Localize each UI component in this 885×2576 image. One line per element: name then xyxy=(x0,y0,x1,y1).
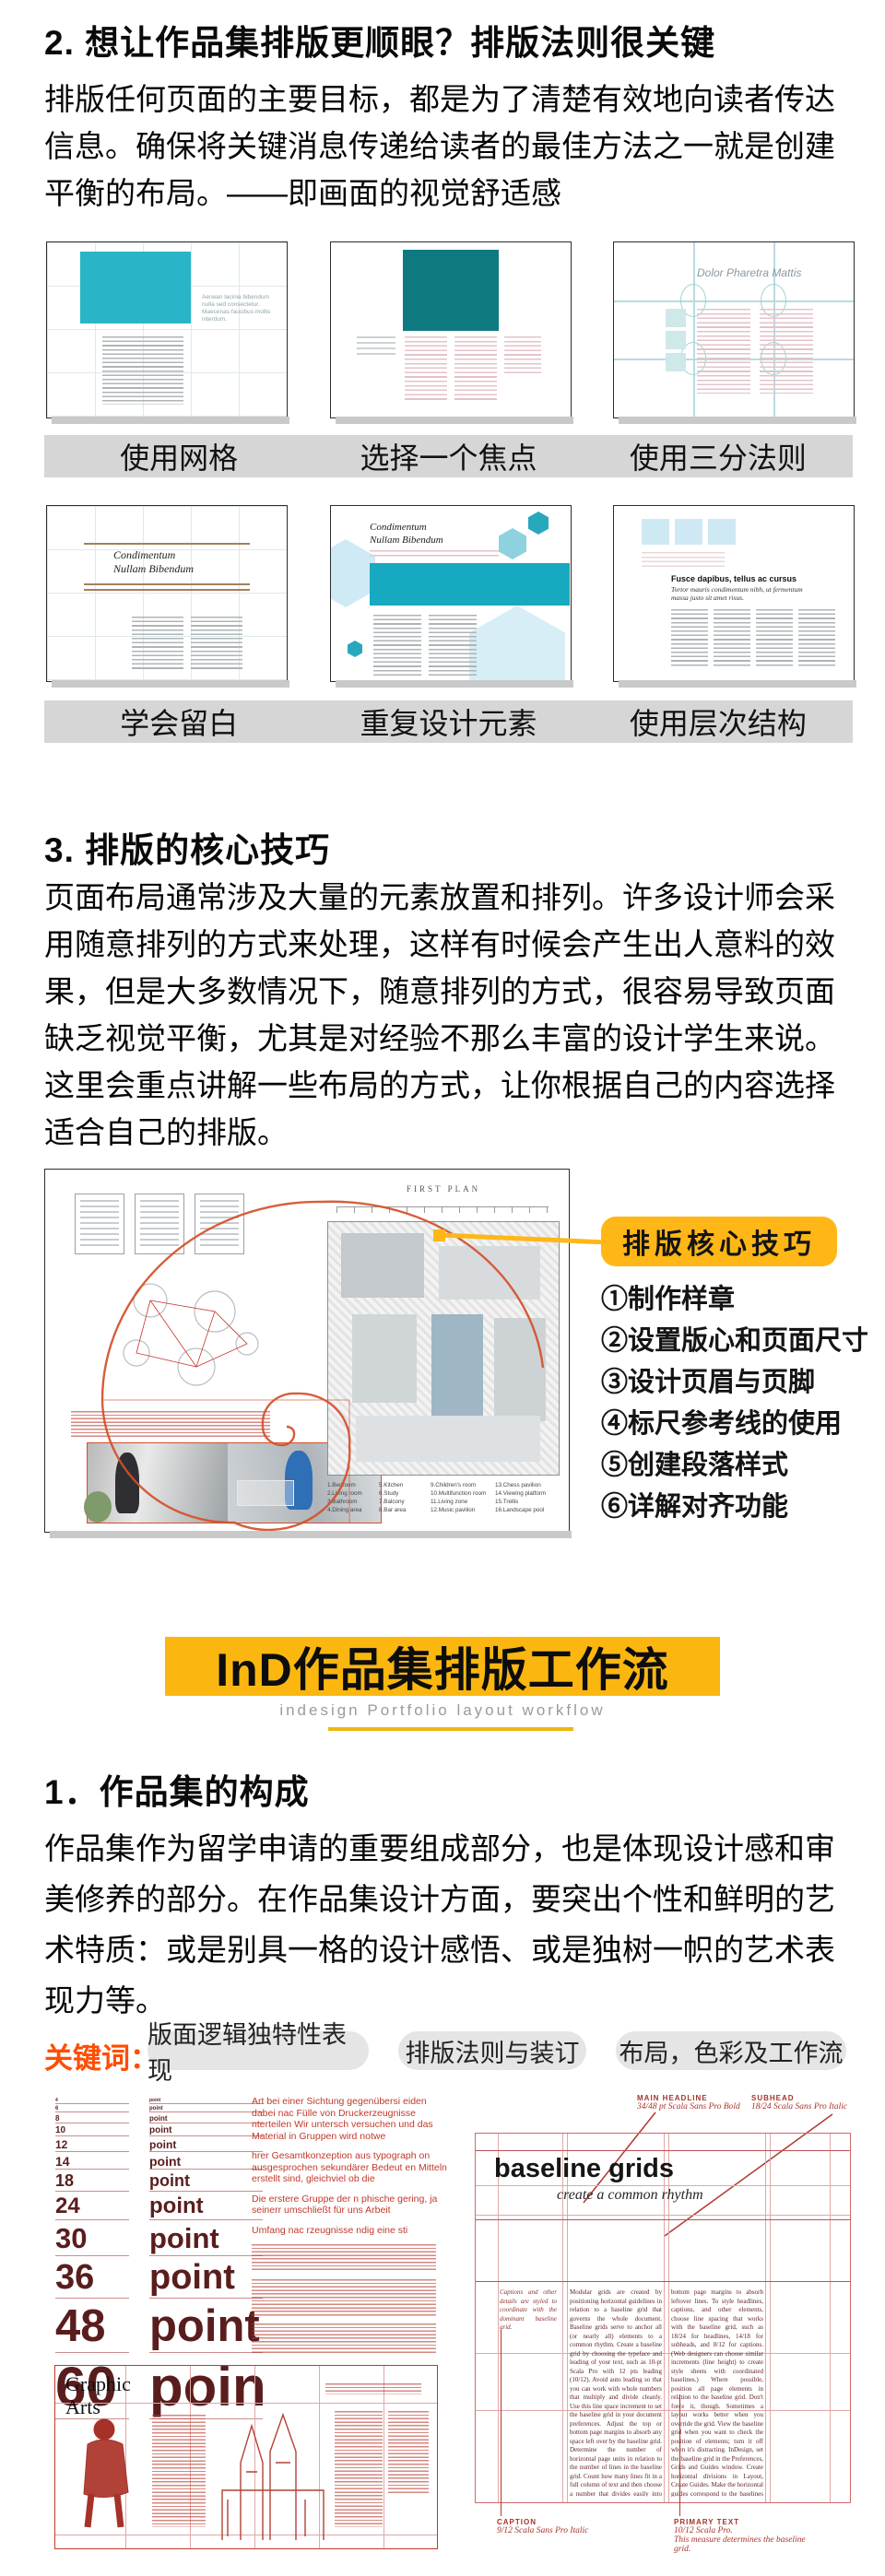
thumb6-subhead: Tortor mauris condimentum nibh, ut ferme… xyxy=(671,585,819,602)
typography-reference-image[interactable]: 4point 6point 8point 10point 12point 14p… xyxy=(32,2090,853,2564)
caption-note: CAPTION 9/12 Scala Sans Pro Italic xyxy=(497,2518,588,2535)
graphic-arts-title: Graphic Arts xyxy=(65,2372,148,2418)
legend-item: 3.Bathroom xyxy=(327,1498,379,1506)
layout-example-whitespace[interactable]: Condimentum Nullam Bibendum xyxy=(46,505,288,682)
gallery-caption: 选择一个焦点 xyxy=(313,435,583,477)
person-silhouette xyxy=(115,1453,139,1513)
caption-band-row2: 学会留白 重复设计元素 使用层次结构 xyxy=(44,700,853,743)
caption-column: Captions and other details are styled to… xyxy=(500,2288,557,2399)
keyword-tag[interactable]: 布局，色彩及工作流 xyxy=(616,2031,846,2070)
layout-example-repetition[interactable]: Condimentum Nullam Bibendum xyxy=(330,505,572,682)
legend-col: 9.Children's room 10.Multifunction room … xyxy=(431,1481,495,1514)
point-word: point xyxy=(149,2222,263,2256)
primary-spec: 10/12 Scala Pro. xyxy=(674,2526,821,2535)
red-column-filler xyxy=(335,2411,383,2527)
thumb4-title-line2: Nullam Bibendum xyxy=(113,562,252,576)
banner-title: InD作品集排版工作流 xyxy=(165,1637,720,1696)
caption-label: CAPTION xyxy=(497,2518,588,2526)
text-filler-block xyxy=(132,617,183,670)
callout-connector-line xyxy=(433,1220,608,1257)
baseline-grids-panel: MAIN HEADLINE 34/48 pt Scala Sans Pro Bo… xyxy=(473,2090,853,2564)
blue-square xyxy=(708,519,736,545)
margin-rule xyxy=(476,2150,850,2151)
teal-square xyxy=(666,353,686,371)
page-shadow xyxy=(619,417,856,424)
point-word: point xyxy=(149,2171,263,2192)
page-shadow xyxy=(336,680,573,688)
layout-example-rule-of-thirds[interactable]: Dolor Pharetra Mattis xyxy=(613,241,855,418)
point-word: point xyxy=(149,2138,263,2152)
thumb5-title: Condimentum Nullam Bibendum xyxy=(370,521,508,547)
text-filler-block xyxy=(373,615,421,676)
thirds-guide xyxy=(614,300,854,302)
teal-block xyxy=(80,252,191,323)
thumb4-title: Condimentum Nullam Bibendum xyxy=(113,548,252,576)
teal-square xyxy=(666,331,686,349)
tip-item: ②设置版心和页面尺寸 xyxy=(601,1321,868,1362)
primary-text-note: PRIMARY TEXT 10/12 Scala Pro. This measu… xyxy=(674,2518,821,2554)
gallery-caption: 重复设计元素 xyxy=(313,700,583,743)
teal-banner xyxy=(370,563,570,606)
text-filler-block xyxy=(642,552,725,567)
text-column-mid: Modular grids are created by positioning… xyxy=(570,2288,662,2497)
graphic-arts-line1: Graphic xyxy=(65,2372,148,2395)
page-shadow xyxy=(50,1531,572,1538)
brown-rule xyxy=(84,543,250,545)
blue-square xyxy=(642,519,669,545)
tip-item: ①制作样章 xyxy=(601,1279,868,1321)
gallery-caption: 使用网格 xyxy=(44,435,313,477)
thumb1-caption-text: Aenean lacinia bibendum nulla sed consec… xyxy=(202,294,276,323)
german-paragraph: Umfang nac rzeugnisse ndig eine sti xyxy=(252,2225,447,2237)
text-filler-block xyxy=(102,336,183,405)
text-filler-block xyxy=(798,609,835,666)
margin-rule xyxy=(476,2281,850,2282)
caption-spec: 9/12 Scala Sans Pro Italic xyxy=(497,2526,588,2535)
plant xyxy=(84,1491,112,1523)
legend-item: 4.Dining area xyxy=(327,1506,379,1514)
brown-rule xyxy=(84,589,250,591)
baseline-grids-title: baseline grids xyxy=(494,2154,674,2184)
point-size: 18 xyxy=(55,2171,129,2192)
article-page: 2. 想让作品集排版更顺眼？排版法则很关键 排版任何页面的主要目标，都是为了清楚… xyxy=(0,0,885,2576)
primary-note: This measure determines the baseline gri… xyxy=(674,2535,821,2554)
baseline-page: baseline grids create a common rhythm Ca… xyxy=(475,2133,851,2503)
tip-item: ⑤创建段落样式 xyxy=(601,1445,868,1487)
german-paragraph: Art bei einer Sichtung gegenübersi eiden… xyxy=(252,2096,447,2142)
legend-col: 1.Bedroom 2.Living room 3.Bathroom 4.Din… xyxy=(327,1481,379,1514)
legend-item: 10.Multifunction room xyxy=(431,1489,495,1498)
tip-item: ④标尺参考线的使用 xyxy=(601,1404,868,1445)
red-column-filler xyxy=(388,2411,429,2494)
gallery-caption: 使用三分法则 xyxy=(584,435,853,477)
plan-legend: 1.Bedroom 2.Living room 3.Bathroom 4.Din… xyxy=(327,1481,560,1514)
point-size: 4 xyxy=(55,2098,129,2104)
bench xyxy=(237,1480,294,1506)
graphic-arts-panel: Graphic Arts xyxy=(49,2359,443,2555)
text-filler-block xyxy=(191,617,242,670)
page-shadow xyxy=(52,417,289,424)
keyword-tag[interactable]: 版面逻辑独特性表现 xyxy=(147,2031,369,2070)
page-shadow xyxy=(619,680,856,688)
caption-pointer-line xyxy=(501,2330,501,2516)
gallery-caption: 学会留白 xyxy=(44,700,313,743)
banner-underline xyxy=(328,1727,573,1731)
keyword-tag[interactable]: 排版法则与装订 xyxy=(398,2031,586,2070)
section1-paragraph: 作品集作为留学申请的重要组成部分，也是体现设计感和审美修养的部分。在作品集设计方… xyxy=(44,1823,843,2026)
point-size: 30 xyxy=(55,2222,129,2256)
activity-analysis-diagram xyxy=(86,1265,279,1404)
red-caption-text xyxy=(71,1411,270,1437)
gallery-caption: 使用层次结构 xyxy=(584,700,853,743)
margin-guide xyxy=(830,2134,831,2502)
red-quote-filler xyxy=(325,2383,421,2394)
banner-subtitle: indesign Portfolio layout workflow xyxy=(0,1701,885,1720)
point-size: 14 xyxy=(55,2154,129,2170)
plan-block xyxy=(356,1416,540,1462)
german-text-column: Art bei einer Sichtung gegenübersi eiden… xyxy=(252,2096,447,2362)
hexagon-shape xyxy=(469,606,565,682)
point-size: 10 xyxy=(55,2125,129,2136)
legend-item: 15.Trellis xyxy=(495,1498,560,1506)
legend-item: 16.Landscape pool xyxy=(495,1506,560,1514)
column-guide xyxy=(765,2134,766,2502)
text-filler-block xyxy=(671,609,708,666)
legend-col: 5.Kitchen 6.Study 7.Balcony 8.Bar area xyxy=(379,1481,431,1514)
point-size: 12 xyxy=(55,2138,129,2152)
text-filler-block xyxy=(454,336,497,403)
legend-col: 13.Chess pavilion 14.Viewing platform 15… xyxy=(495,1481,560,1514)
point-word: point xyxy=(149,2258,263,2299)
layout-example-grid[interactable]: Aenean lacinia bibendum nulla sed consec… xyxy=(46,241,288,418)
legend-item: 6.Study xyxy=(379,1489,431,1498)
section3-paragraph: 页面布局通常涉及大量的元素放置和排列。许多设计师会采用随意排列的方式来处理，这样… xyxy=(44,874,843,1156)
dimension-ruler xyxy=(336,1206,549,1213)
text-filler-block xyxy=(357,336,395,357)
point-word: point xyxy=(149,2106,263,2112)
legend-item: 8.Bar area xyxy=(379,1506,431,1514)
hexagon-shape xyxy=(528,512,549,535)
primary-pointer-line xyxy=(679,2394,680,2516)
legend-item: 1.Bedroom xyxy=(327,1481,379,1489)
text-filler-block xyxy=(714,609,750,666)
hexagon-shape xyxy=(348,641,362,657)
point-word: point xyxy=(149,2194,263,2220)
thumb3-title: Dolor Pharetra Mattis xyxy=(697,266,817,279)
section1-heading: 1．作品集的构成 xyxy=(44,1764,310,1814)
plan-block xyxy=(352,1314,417,1403)
callout-pill: 排版核心技巧 xyxy=(601,1217,837,1266)
keywords-label: 关键词： xyxy=(44,2035,159,2076)
text-filler-block xyxy=(405,336,447,403)
plan-label: FIRST PLAN xyxy=(407,1184,480,1194)
plan-courtyard xyxy=(431,1314,483,1425)
blue-square xyxy=(675,519,702,545)
section2-heading: 2. 想让作品集排版更顺眼？排版法则很关键 xyxy=(44,15,715,65)
point-size: 48 xyxy=(55,2300,129,2353)
text-filler-block xyxy=(760,309,813,394)
point-size: 24 xyxy=(55,2194,129,2220)
text-filler-block xyxy=(504,336,541,373)
hexagon-shape xyxy=(330,539,375,607)
thumb5-title-line1: Condimentum xyxy=(370,521,508,534)
legend-item: 9.Children's room xyxy=(431,1481,495,1489)
thumb6-heading: Fusce dapibus, tellus ac cursus xyxy=(671,574,828,583)
page-shadow xyxy=(336,417,573,424)
woodcut-figure xyxy=(69,2413,141,2533)
caption-band-row1: 使用网格 选择一个焦点 使用三分法则 xyxy=(44,435,853,477)
legend-item: 12.Music pavilion xyxy=(431,1506,495,1514)
legend-item: 5.Kitchen xyxy=(379,1481,431,1489)
text-filler-block xyxy=(429,615,477,676)
tips-list: ①制作样章 ②设置版心和页面尺寸 ③设计页眉与页脚 ④标尺参考线的使用 ⑤创建段… xyxy=(601,1279,868,1528)
point-size: 8 xyxy=(55,2114,129,2123)
margin-rule xyxy=(476,2219,850,2220)
red-text-filler xyxy=(252,2244,436,2272)
plan-block xyxy=(341,1233,424,1298)
page-shadow xyxy=(52,680,289,688)
layout-example-hierarchy[interactable]: Fusce dapibus, tellus ac cursus Tortor m… xyxy=(613,505,855,682)
german-paragraph: Die erstere Gruppe der n phische gering,… xyxy=(252,2194,447,2217)
point-size: 36 xyxy=(55,2258,129,2299)
thumb5-title-line2: Nullam Bibendum xyxy=(370,534,508,547)
column-guide xyxy=(770,2134,771,2502)
mini-plan xyxy=(195,1194,244,1254)
point-word: point xyxy=(149,2098,263,2104)
brown-rule xyxy=(84,583,250,585)
german-paragraph: hrer Gesamtkonzeption aus typograph on a… xyxy=(252,2150,447,2185)
legend-item: 13.Chess pavilion xyxy=(495,1481,560,1489)
text-column-right: bottom page margins to absorb leftover l… xyxy=(671,2288,763,2497)
mini-plan xyxy=(135,1194,184,1254)
section3-heading: 3. 排版的核心技巧 xyxy=(44,822,330,872)
tip-item: ⑥详解对齐功能 xyxy=(601,1487,868,1528)
baseline-rule xyxy=(476,2410,850,2411)
layout-example-focal-point[interactable] xyxy=(330,241,572,418)
tip-item: ③设计页眉与页脚 xyxy=(601,1362,868,1404)
dark-teal-block xyxy=(403,250,499,331)
baseline-rule xyxy=(476,2215,850,2216)
mini-plan xyxy=(75,1194,124,1254)
point-word: point xyxy=(149,2125,263,2136)
legend-item: 14.Viewing platform xyxy=(495,1489,560,1498)
legend-item: 7.Balcony xyxy=(379,1498,431,1506)
margin-guide xyxy=(498,2134,499,2502)
section2-paragraph: 排版任何页面的主要目标，都是为了清楚有效地向读者传达信息。确保将关键消息传递给读… xyxy=(44,76,843,217)
text-filler-block xyxy=(756,609,793,666)
point-word: point xyxy=(149,2114,263,2123)
point-word: point xyxy=(149,2300,263,2353)
legend-item: 11.Living zone xyxy=(431,1498,495,1506)
teal-square xyxy=(666,309,686,327)
red-text-filler xyxy=(252,2323,436,2355)
thirds-guide xyxy=(693,242,695,418)
plan-block xyxy=(494,1318,546,1421)
baseline-grids-subtitle: create a common rhythm xyxy=(557,2187,703,2204)
primary-label: PRIMARY TEXT xyxy=(674,2518,821,2526)
point-word: point xyxy=(149,2154,263,2170)
photo xyxy=(88,1443,228,1523)
red-column-filler xyxy=(152,2415,206,2527)
red-text-filler xyxy=(252,2279,436,2316)
floor-plan xyxy=(327,1221,560,1476)
text-filler-block xyxy=(697,309,750,394)
thumb4-title-line1: Condimentum xyxy=(113,548,252,562)
woodcut-cathedral xyxy=(213,2407,327,2540)
point-size: 6 xyxy=(55,2106,129,2112)
legend-item: 2.Living room xyxy=(327,1489,379,1498)
text-filler-block xyxy=(370,550,499,557)
baseline-rule xyxy=(476,2185,850,2186)
